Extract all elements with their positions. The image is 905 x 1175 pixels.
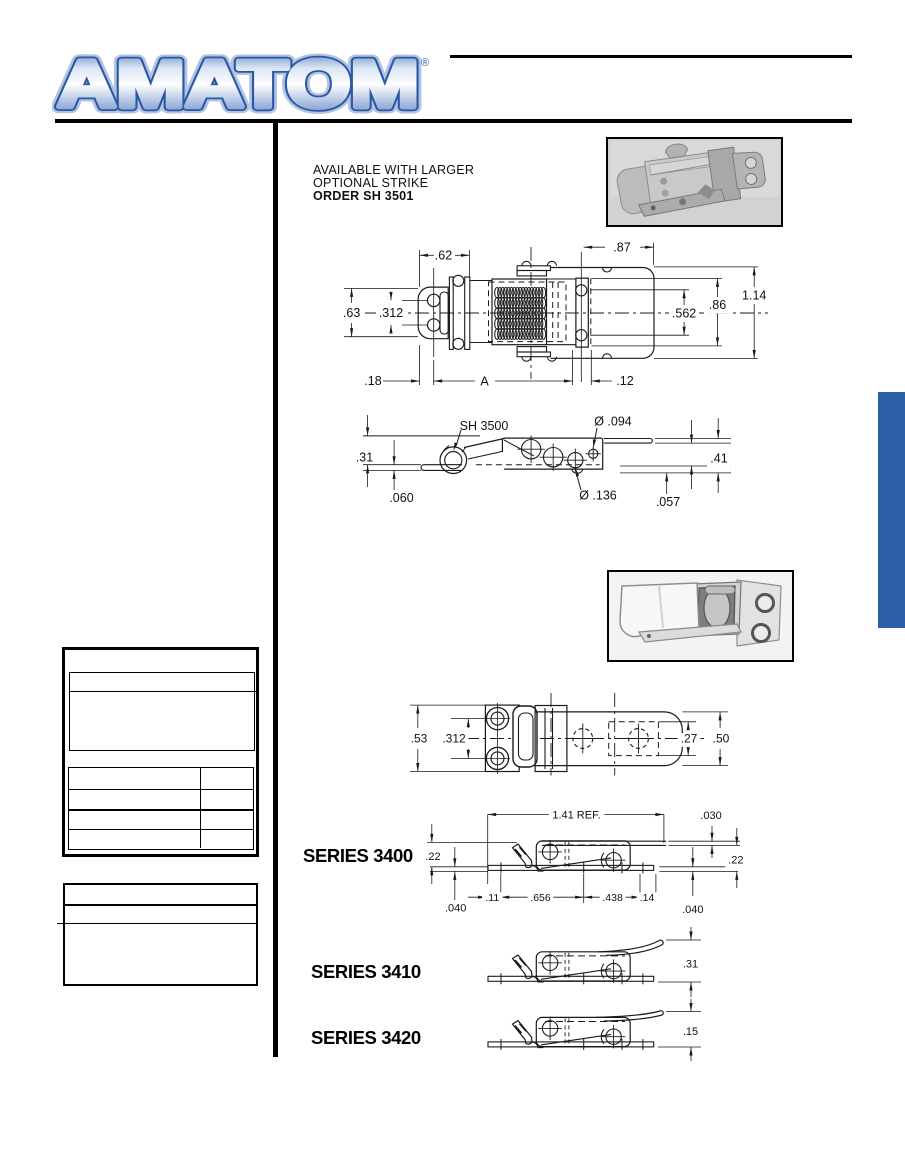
svg-text:.11: .11 bbox=[485, 892, 499, 904]
svg-text:1.14: 1.14 bbox=[742, 289, 766, 303]
svg-text:.22: .22 bbox=[728, 855, 743, 867]
svg-text:.312: .312 bbox=[442, 732, 466, 746]
svg-text:.030: .030 bbox=[700, 810, 721, 822]
svg-text:.53: .53 bbox=[411, 732, 428, 746]
svg-text:SH 3500: SH 3500 bbox=[460, 419, 509, 433]
svg-text:1.41 REF.: 1.41 REF. bbox=[552, 809, 600, 821]
svg-text:Ø .094: Ø .094 bbox=[594, 415, 632, 429]
svg-text:.41: .41 bbox=[710, 452, 727, 466]
svg-text:.15: .15 bbox=[683, 1026, 698, 1038]
svg-text:.057: .057 bbox=[656, 495, 680, 509]
svg-text:.22: .22 bbox=[425, 851, 440, 863]
svg-text:.27: .27 bbox=[681, 732, 698, 746]
svg-text:.312: .312 bbox=[379, 306, 403, 320]
svg-text:.62: .62 bbox=[435, 249, 452, 263]
svg-text:.31: .31 bbox=[683, 959, 698, 971]
svg-text:.438: .438 bbox=[602, 892, 623, 904]
svg-text:.656: .656 bbox=[530, 892, 551, 904]
svg-text:.14: .14 bbox=[640, 892, 655, 904]
svg-text:.63: .63 bbox=[343, 306, 360, 320]
svg-text:.31: .31 bbox=[356, 451, 373, 465]
svg-text:.040: .040 bbox=[445, 903, 466, 915]
svg-text:.040: .040 bbox=[682, 904, 703, 916]
svg-text:.18: .18 bbox=[364, 374, 381, 388]
svg-text:A: A bbox=[480, 375, 489, 389]
svg-text:.86: .86 bbox=[709, 298, 726, 312]
svg-text:.50: .50 bbox=[713, 732, 730, 746]
svg-text:.060: .060 bbox=[389, 491, 413, 505]
svg-text:.12: .12 bbox=[616, 374, 633, 388]
svg-text:.87: .87 bbox=[613, 240, 630, 254]
svg-text:.562: .562 bbox=[672, 307, 696, 321]
svg-text:Ø .136: Ø .136 bbox=[579, 489, 617, 503]
